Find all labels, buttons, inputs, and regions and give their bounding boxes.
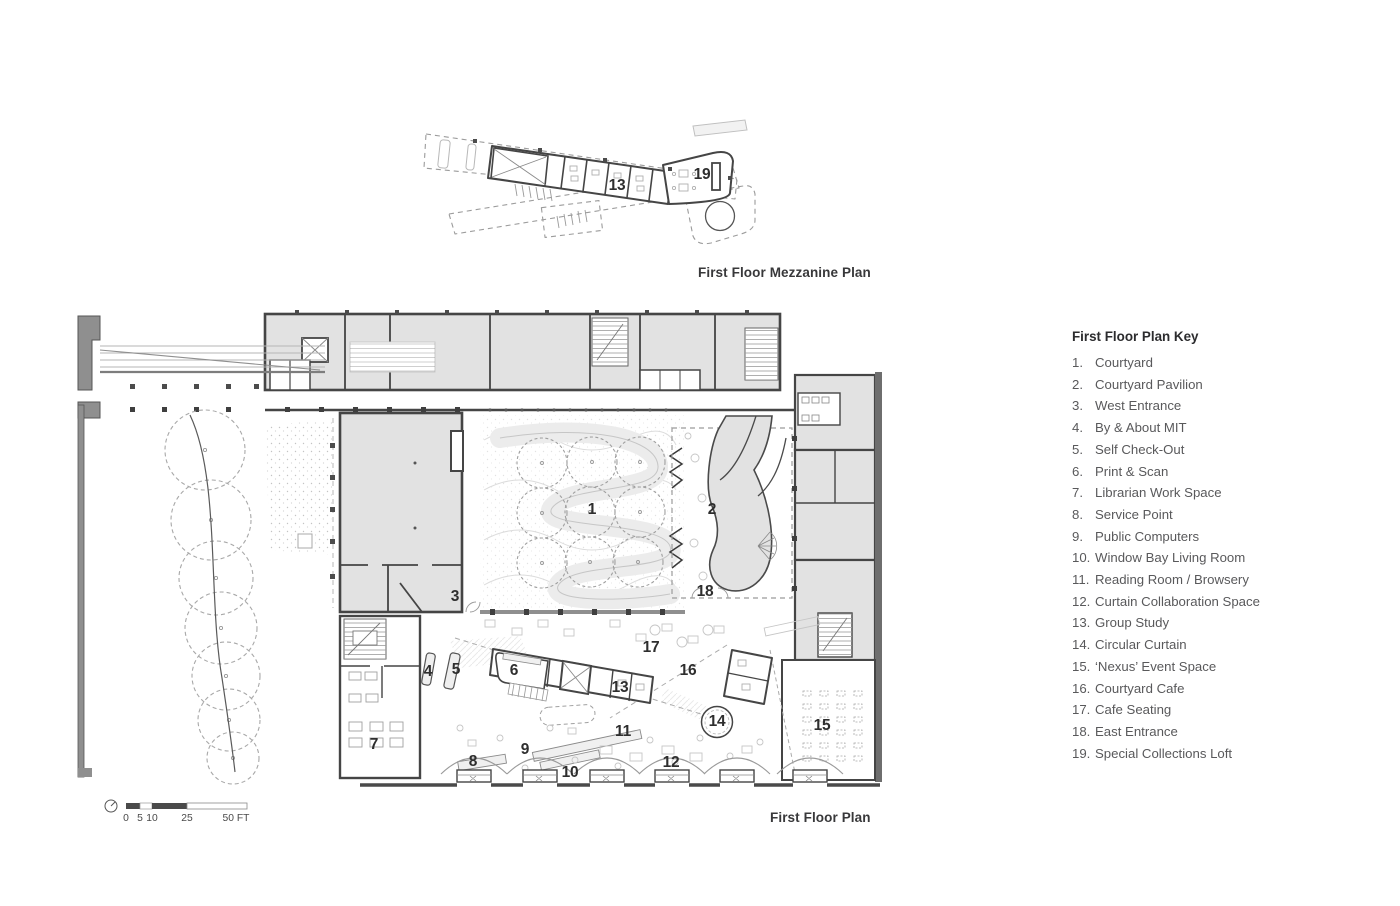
plan-key-item: 6. Print & Scan [1072,461,1322,483]
mezzanine-plan: 1319 [415,118,775,268]
plan-key-item: 17. Cafe Seating [1072,699,1322,721]
first-floor-plan: 123456789101112131415161718 [70,298,890,798]
mezzanine-roof-element [693,120,747,136]
courtyard-cafe [724,650,772,704]
plan-key-item-label: Circular Curtain [1095,634,1322,656]
pavilion-tables [685,433,707,580]
plan-key-list: 1. Courtyard 2. Courtyard Pavilion 3. We… [1072,352,1322,764]
librarian-workspace [340,616,420,778]
plan-key-item-label: East Entrance [1095,721,1322,743]
plan-key-item-number: 2. [1072,374,1095,396]
plan-key-item-number: 19. [1072,743,1095,765]
plan-key-item: 12. Curtain Collaboration Space [1072,591,1322,613]
scale-bar: 05102550 FT [100,797,275,833]
scale-tick-50 FT: 50 FT [223,813,250,824]
plan-key-item-label: Print & Scan [1095,461,1322,483]
plan-key-item-number: 4. [1072,417,1095,439]
mezzanine-left-fixtures [438,140,477,171]
plan-key-item-number: 14. [1072,634,1095,656]
collab-bar [490,649,653,703]
site-path-line [190,415,235,772]
plan-key-item-label: Service Point [1095,504,1322,526]
plan-key-item-number: 1. [1072,352,1095,374]
plan-key-item: 19. Special Collections Loft [1072,743,1322,765]
circular-curtain [702,707,733,738]
plan-key-item-label: West Entrance [1095,395,1322,417]
displays [421,652,460,689]
scale-bar-drawing [100,797,275,813]
site-wall [78,405,92,777]
plan-key-item-label: Courtyard [1095,352,1322,374]
plan-key-item-number: 18. [1072,721,1095,743]
plan-key-item: 3. West Entrance [1072,395,1322,417]
plan-key-item-label: Cafe Seating [1095,699,1322,721]
plan-key-item-label: Window Bay Living Room [1095,547,1322,569]
plan-key-item-number: 6. [1072,461,1095,483]
plan-key-item: 18. East Entrance [1072,721,1322,743]
plan-key-item: 8. Service Point [1072,504,1322,526]
plan-key-item: 13. Group Study [1072,612,1322,634]
plan-key-item-label: Librarian Work Space [1095,482,1322,504]
plan-key-item-number: 9. [1072,526,1095,548]
courtyard [480,415,685,615]
mezzanine-plan-drawing [415,118,775,268]
plan-key-item: 14. Circular Curtain [1072,634,1322,656]
first-floor-plan-title: First Floor Plan [770,810,871,825]
mezzanine-plan-title: First Floor Mezzanine Plan [698,265,871,280]
mezzanine-loft-19 [663,152,733,204]
trees-west [165,410,260,784]
plan-key-item-number: 3. [1072,395,1095,417]
plan-key-item-number: 15. [1072,656,1095,678]
floor-plan-sheet: 1319 First Floor Mezzanine Plan [0,0,1400,906]
plan-key-item-label: Courtyard Cafe [1095,678,1322,700]
first-floor-plan-drawing [70,298,890,798]
plan-key-item-label: Reading Room / Browsery [1095,569,1322,591]
plan-key-item: 7. Librarian Work Space [1072,482,1322,504]
plan-key-item: 2. Courtyard Pavilion [1072,374,1322,396]
plan-key-item-label: Special Collections Loft [1095,743,1322,765]
scale-tick-10: 10 [146,813,157,824]
plan-key-title: First Floor Plan Key [1072,329,1322,344]
west-block [340,413,463,612]
plan-key-item: 4. By & About MIT [1072,417,1322,439]
scale-tick-5: 5 [137,813,143,824]
plan-key-item: 1. Courtyard [1072,352,1322,374]
plan-key-item: 9. Public Computers [1072,526,1322,548]
plan-key-item-number: 13. [1072,612,1095,634]
plan-key-item: 15. ‘Nexus’ Event Space [1072,656,1322,678]
plan-key-item: 16. Courtyard Cafe [1072,678,1322,700]
north-wing [265,310,780,390]
plan-key-item-label: By & About MIT [1095,417,1322,439]
plan-key-item-label: Self Check-Out [1095,439,1322,461]
plan-key-panel: First Floor Plan Key 1. Courtyard 2. Cou… [1072,329,1322,764]
plan-key-item-number: 10. [1072,547,1095,569]
plan-key-item-number: 17. [1072,699,1095,721]
scale-bar-segments [126,803,247,809]
plan-key-item-number: 8. [1072,504,1095,526]
plan-key-item-label: Courtyard Pavilion [1095,374,1322,396]
plan-key-item-number: 11. [1072,569,1095,591]
pavilion-blob [708,416,786,591]
plan-key-item-label: Public Computers [1095,526,1322,548]
plan-key-item-number: 5. [1072,439,1095,461]
plan-key-item-label: ‘Nexus’ Event Space [1095,656,1322,678]
plan-key-item: 10. Window Bay Living Room [1072,547,1322,569]
north-arrow-icon [105,800,117,812]
landscape-bed [265,420,335,555]
plan-key-item-number: 16. [1072,678,1095,700]
scale-tick-25: 25 [181,813,192,824]
scale-tick-0: 0 [123,813,129,824]
display-case [712,163,720,190]
plan-key-item-number: 12. [1072,591,1095,613]
service-shelves [458,730,642,771]
plan-key-item-number: 7. [1072,482,1095,504]
plan-key-item: 11. Reading Room / Browsery [1072,569,1322,591]
plan-key-item-label: Curtain Collaboration Space [1095,591,1322,613]
mezzanine-bar [488,146,672,228]
plan-key-item: 5. Self Check-Out [1072,439,1322,461]
plan-key-item-label: Group Study [1095,612,1322,634]
mezzanine-oculus [706,202,735,231]
